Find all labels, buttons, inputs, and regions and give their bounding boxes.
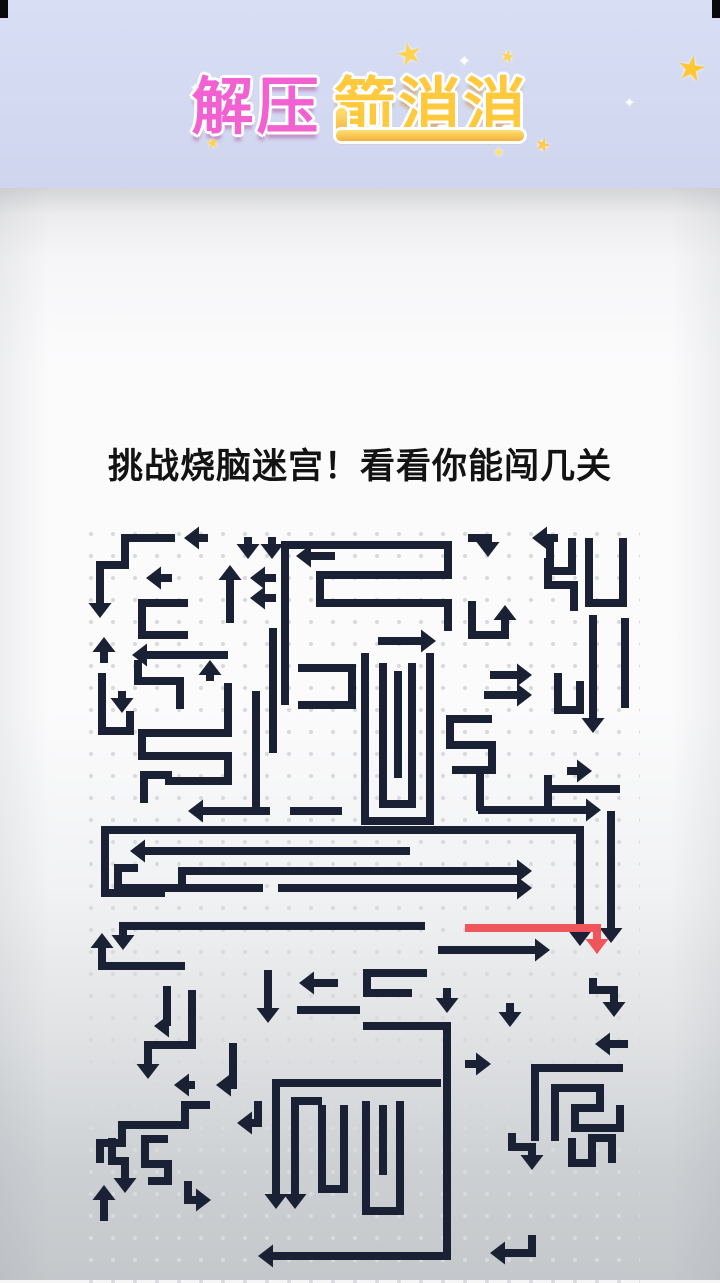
arrow-shaft bbox=[468, 538, 488, 542]
top-right-notch bbox=[712, 0, 720, 18]
arrow-shaft bbox=[231, 1043, 233, 1085]
star-icon: ★ bbox=[393, 37, 426, 73]
star-icon: ✦ bbox=[458, 54, 471, 69]
arrow-shaft bbox=[167, 986, 169, 1026]
top-left-notch bbox=[0, 0, 8, 18]
logo-underline-swoosh bbox=[336, 130, 524, 141]
puzzle-panel: 挑战烧脑迷宫！看看你能闯几关 bbox=[0, 188, 720, 1280]
maze-canvas[interactable] bbox=[80, 523, 640, 1283]
logo-part-pink: 解压 bbox=[191, 73, 321, 142]
star-icon: ✦ bbox=[492, 146, 505, 162]
header-banner: 解压箭消消 ★★★★★✦✦✦✦ bbox=[0, 0, 720, 188]
star-icon: ✦ bbox=[190, 82, 200, 94]
star-icon: ✦ bbox=[624, 96, 635, 109]
challenge-caption: 挑战烧脑迷宫！看看你能闯几关 bbox=[0, 438, 720, 489]
star-icon: ★ bbox=[673, 50, 709, 89]
star-icon: ★ bbox=[205, 135, 220, 152]
